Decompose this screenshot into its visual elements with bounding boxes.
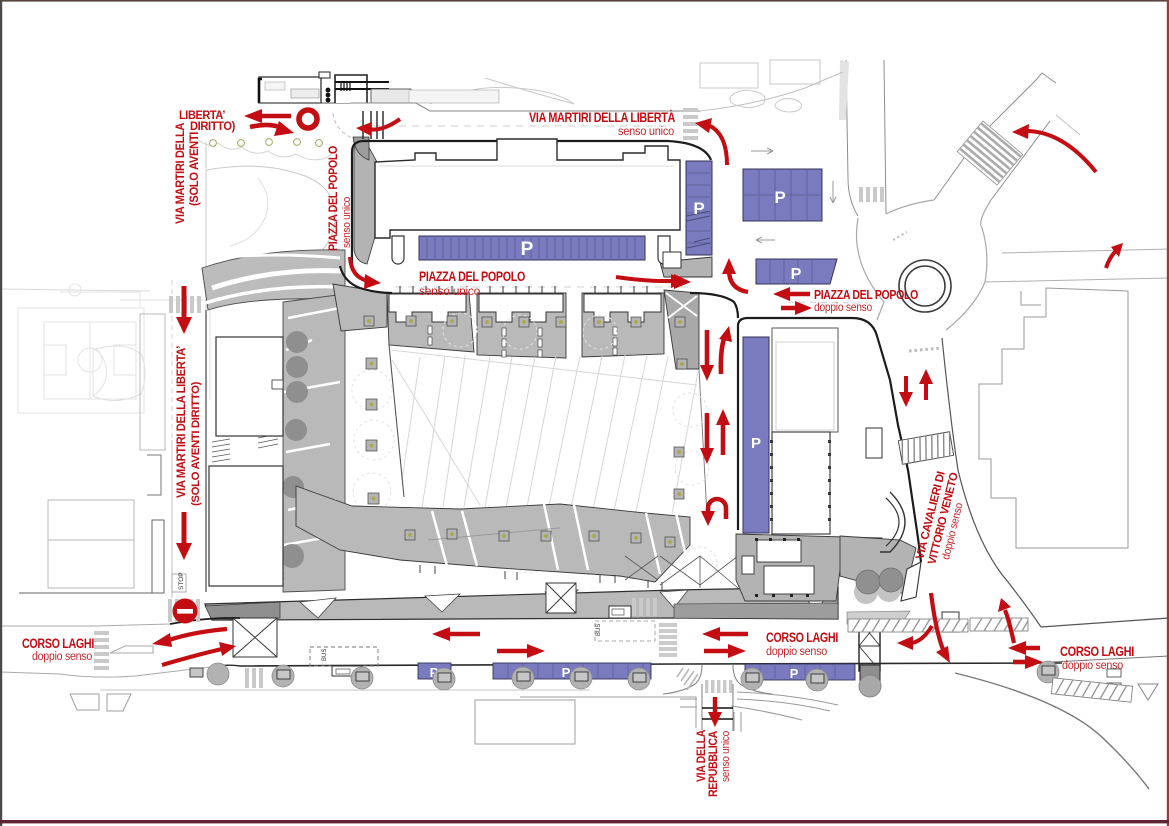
svg-text:doppio senso: doppio senso	[766, 644, 827, 658]
svg-text:PIAZZA DEL POPOLO: PIAZZA DEL POPOLO	[326, 146, 340, 251]
svg-text:STOP: STOP	[178, 572, 185, 590]
svg-text:doppio senso: doppio senso	[814, 300, 873, 314]
svg-text:P: P	[562, 665, 571, 680]
svg-text:P: P	[751, 435, 761, 452]
svg-text:VIA MARTIRI DELLA: VIA MARTIRI DELLA	[174, 122, 187, 224]
svg-text:BUS: BUS	[596, 624, 602, 636]
svg-text:senso unico: senso unico	[419, 284, 480, 298]
svg-text:P: P	[791, 266, 802, 283]
svg-text:PIAZZA DEL POPOLO: PIAZZA DEL POPOLO	[419, 269, 525, 284]
svg-text:doppio senso: doppio senso	[1062, 658, 1123, 672]
svg-text:VIA MARTIRI DELLA LIBERTÀ: VIA MARTIRI DELLA LIBERTÀ	[529, 109, 675, 125]
svg-text:senso unico: senso unico	[720, 731, 732, 782]
svg-text:DIRITTO): DIRITTO)	[190, 119, 235, 133]
svg-text:(SOLO AVENTI: (SOLO AVENTI	[188, 132, 201, 206]
svg-text:REPUBBLICA: REPUBBLICA	[707, 730, 720, 797]
svg-text:P: P	[790, 666, 799, 681]
svg-text:doppio senso: doppio senso	[32, 649, 92, 663]
svg-text:senso unico: senso unico	[618, 124, 674, 138]
svg-text:P: P	[521, 239, 534, 260]
svg-text:BUS: BUS	[322, 649, 328, 661]
svg-text:senso unico: senso unico	[341, 197, 353, 248]
svg-text:P: P	[693, 199, 704, 218]
svg-text:P: P	[774, 188, 785, 207]
svg-text:CORSO LAGHI: CORSO LAGHI	[766, 630, 838, 645]
svg-text:(SOLO AVENTI DIRITTO): (SOLO AVENTI DIRITTO)	[190, 381, 202, 506]
svg-text:VIA MARTIRI DELLA LIBERTA’: VIA MARTIRI DELLA LIBERTA’	[174, 346, 188, 498]
svg-text:CORSO LAGHI: CORSO LAGHI	[1060, 644, 1134, 659]
